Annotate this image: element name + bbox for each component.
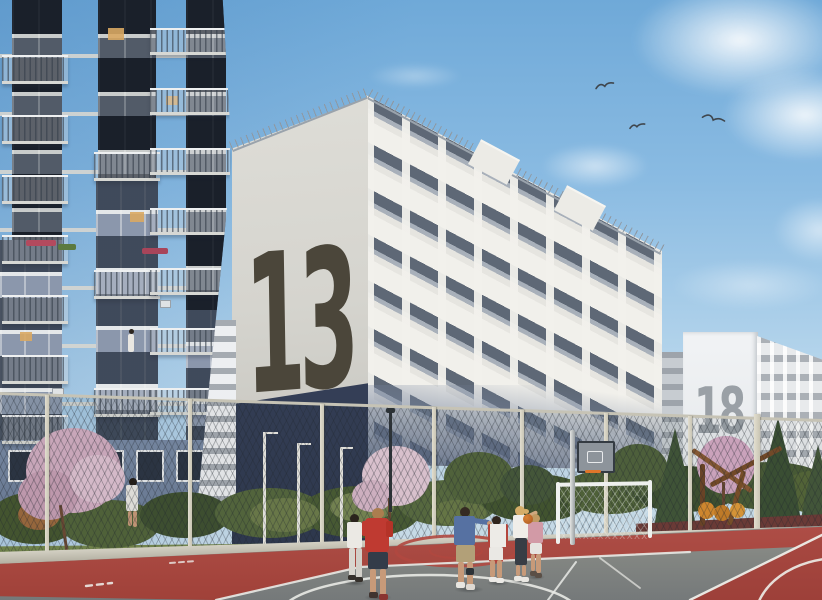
player-leg [497,560,502,578]
player-calf [516,565,520,576]
player-red-shirt [362,508,392,600]
player-shorts [368,552,388,569]
player-leg [349,548,355,576]
court-markings [0,0,822,600]
player-shoe [369,592,378,598]
goal-post [648,480,652,538]
player-shorts [530,543,542,554]
basketball-backboard [577,441,615,473]
player-leg [458,562,464,583]
player-leg [490,560,495,577]
player-leg [370,569,376,593]
residential-courtyard-scene: 18 13 [0,0,822,600]
player-jersey [488,524,508,547]
player-shirt [347,522,362,548]
player-white-red-jersey [484,516,510,586]
basketball [523,514,533,524]
player-shorts [456,545,475,562]
player-leg [536,554,541,573]
hoop-pole [570,430,575,545]
player-shoe [456,582,465,588]
player-shoe [379,594,388,600]
goal-post [556,482,560,544]
player-shoe [466,584,475,590]
player-leg [531,554,535,571]
player-top [528,522,543,543]
player-knee-brace [466,568,474,575]
basketball-rim [585,470,601,473]
player-sleeve [386,521,393,537]
player-shoe [535,573,542,578]
backboard-square [587,451,603,463]
basketball-hoop-unit [540,425,670,550]
player-shoe [496,578,504,583]
player-sleeve [362,521,368,536]
player-leg [380,569,386,595]
